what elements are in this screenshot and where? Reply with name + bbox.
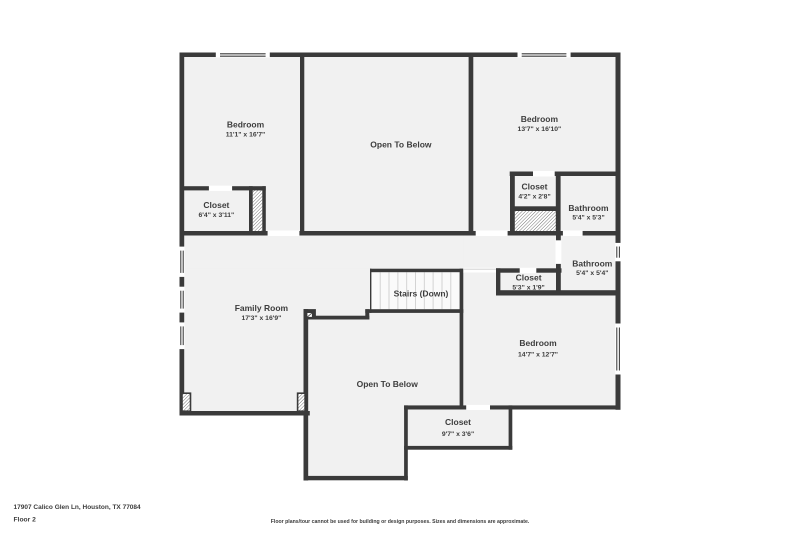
- svg-text:17907 Calico Glen Ln, Houston,: 17907 Calico Glen Ln, Houston, TX 77084: [14, 504, 142, 511]
- svg-text:Floor 2: Floor 2: [14, 517, 37, 524]
- svg-text:Closet: Closet: [203, 200, 229, 210]
- svg-text:6'4" x 3'11": 6'4" x 3'11": [199, 212, 235, 219]
- svg-text:Bedroom: Bedroom: [521, 114, 559, 124]
- svg-text:13'7" x 16'10": 13'7" x 16'10": [518, 126, 562, 133]
- svg-text:Stairs (Down): Stairs (Down): [394, 289, 449, 299]
- svg-text:11'1" x 16'7": 11'1" x 16'7": [226, 132, 266, 139]
- svg-text:17'3" x 16'9": 17'3" x 16'9": [241, 315, 281, 322]
- svg-text:Bathroom: Bathroom: [572, 258, 613, 268]
- svg-text:14'7" x 12'7": 14'7" x 12'7": [518, 351, 558, 358]
- svg-text:Family Room: Family Room: [235, 303, 289, 313]
- svg-text:Bedroom: Bedroom: [519, 338, 557, 348]
- svg-text:5'3" x 1'9": 5'3" x 1'9": [512, 285, 544, 292]
- svg-text:Closet: Closet: [445, 417, 471, 427]
- svg-text:Bedroom: Bedroom: [227, 120, 265, 130]
- svg-text:5'4" x 5'3": 5'4" x 5'3": [572, 214, 604, 221]
- svg-text:Open To Below: Open To Below: [370, 139, 432, 149]
- svg-text:Open To Below: Open To Below: [357, 379, 419, 389]
- svg-text:9'7" x 3'6": 9'7" x 3'6": [442, 431, 474, 438]
- svg-text:5'4" x 5'4": 5'4" x 5'4": [576, 270, 608, 277]
- svg-text:Bathroom: Bathroom: [568, 203, 609, 213]
- svg-text:Floor plans/tour cannot be use: Floor plans/tour cannot be used for buil…: [271, 519, 530, 525]
- svg-text:Closet: Closet: [516, 273, 542, 283]
- svg-text:Closet: Closet: [522, 181, 548, 191]
- svg-text:4'2" x 2'8": 4'2" x 2'8": [518, 193, 550, 200]
